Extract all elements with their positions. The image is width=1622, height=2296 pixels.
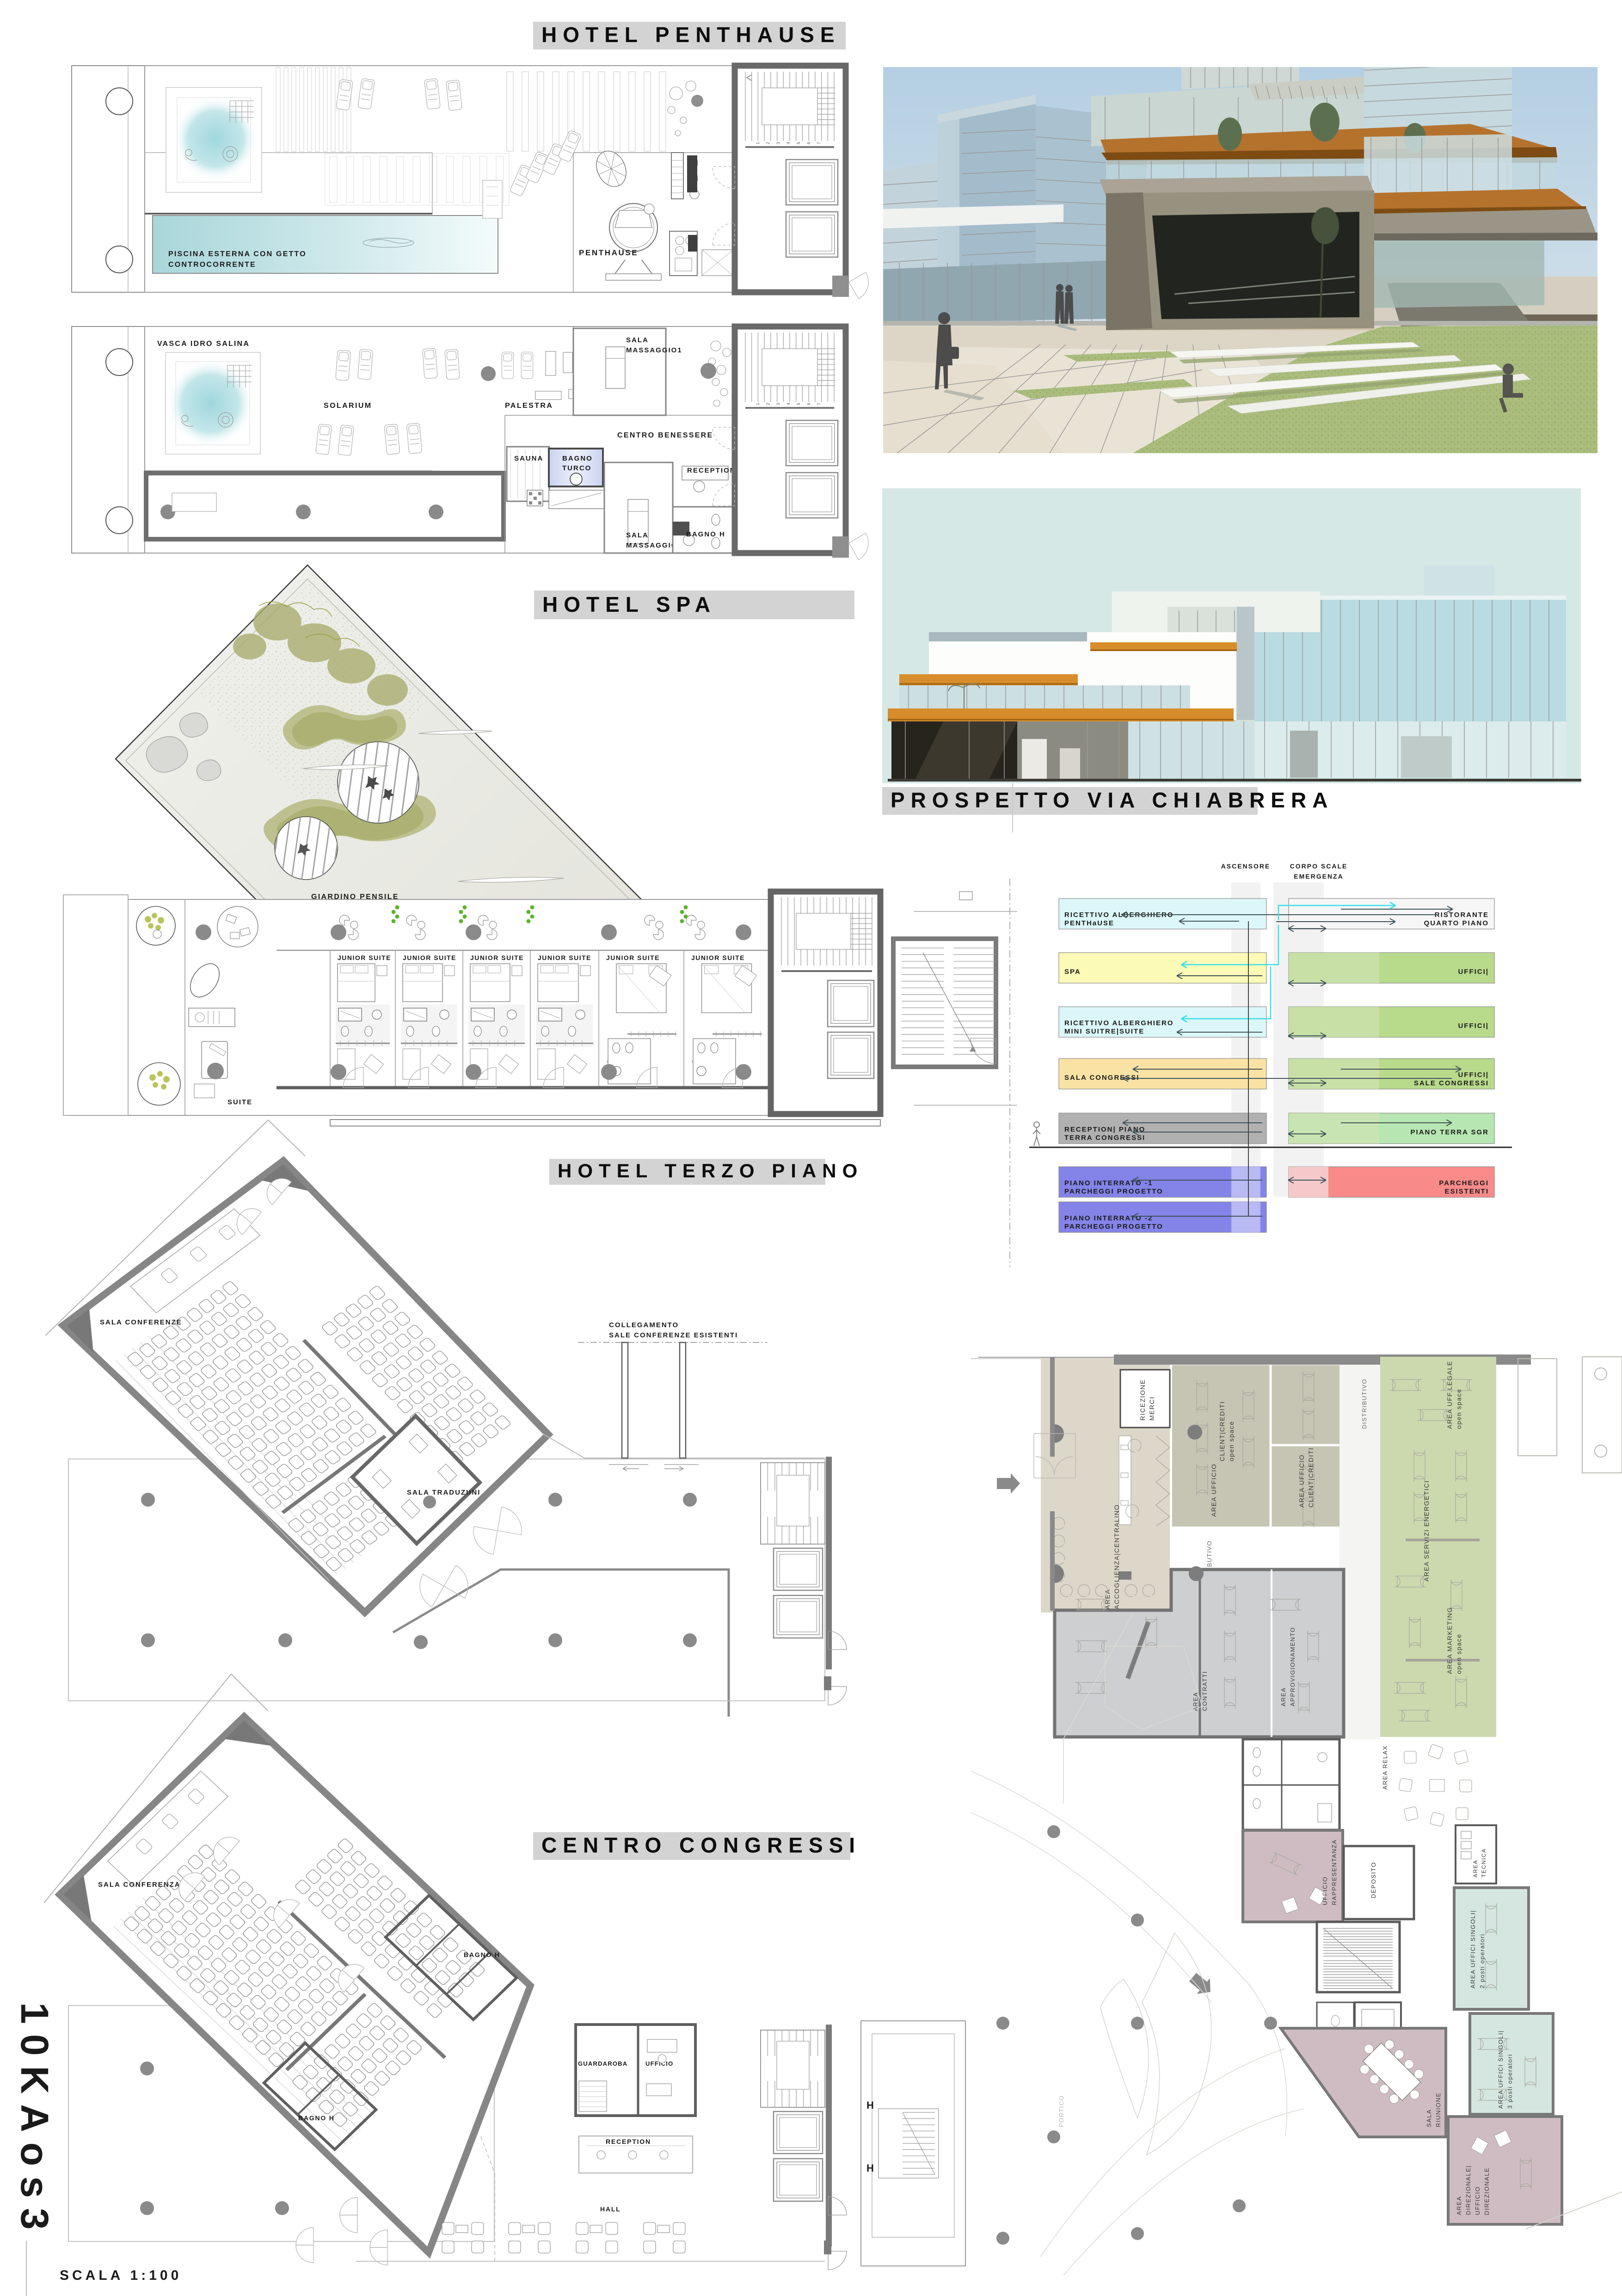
svg-text:SPA: SPA [1064,968,1081,976]
svg-text:GUARDAROBA: GUARDAROBA [578,2060,627,2067]
svg-text:CORPO SCALE: CORPO SCALE [1290,862,1348,870]
svg-text:PENTHaUSE: PENTHaUSE [1064,919,1114,927]
svg-text:QUARTO PIANO: QUARTO PIANO [1424,919,1489,927]
svg-text:EMERGENZA: EMERGENZA [1294,873,1343,880]
svg-text:SALA CONFERENZE: SALA CONFERENZE [100,1318,182,1326]
svg-text:RICEZIONE: RICEZIONE [1139,1379,1146,1421]
svg-text:JUNIOR SUITE: JUNIOR SUITE [470,954,524,961]
svg-text:DEPOSITO: DEPOSITO [1370,1862,1377,1898]
svg-text:2: 2 [766,142,770,144]
svg-text:open space: open space [1455,1634,1462,1674]
svg-text:RICETTIVO ALBERGHIERO: RICETTIVO ALBERGHIERO [1064,1019,1173,1027]
svg-text:DISTRIBUTIVO: DISTRIBUTIVO [1361,1379,1368,1429]
svg-text:SOLARIUM: SOLARIUM [324,402,372,410]
svg-text:HALL: HALL [600,2205,621,2213]
svg-text:AREA RELAX: AREA RELAX [1382,1745,1389,1790]
svg-text:SALA: SALA [626,531,649,539]
svg-text:1: 1 [756,142,760,144]
svg-text:JUNIOR SUITE: JUNIOR SUITE [538,954,591,961]
svg-text:SALA: SALA [1425,2109,1432,2127]
svg-text:PALESTRA: PALESTRA [505,402,553,410]
svg-text:BAGNO H: BAGNO H [686,530,725,538]
svg-text:HOTEL TERZO PIANO: HOTEL TERZO PIANO [558,1160,863,1182]
svg-text:AREA UFFICIO: AREA UFFICIO [1210,1464,1217,1517]
svg-text:HOTEL PENTHAUSE: HOTEL PENTHAUSE [541,23,841,47]
svg-text:CLIENT|CREDITI: CLIENT|CREDITI [1218,1401,1226,1461]
svg-text:RECEPTION: RECEPTION [687,467,736,474]
svg-text:RECEPTION: RECEPTION [606,2138,651,2145]
svg-text:7: 7 [817,403,821,405]
svg-text:UFFICIO: UFFICIO [1474,2186,1481,2216]
svg-text:open space: open space [1455,1389,1462,1429]
svg-text:AREA UFFICIO: AREA UFFICIO [1298,1454,1305,1508]
svg-text:AREA: AREA [1280,1687,1287,1706]
svg-text:4: 4 [786,142,791,144]
svg-text:SCALA 1:100: SCALA 1:100 [60,2268,182,2283]
svg-text:UFFICI|: UFFICI| [1458,968,1489,976]
svg-text:10KAos3: 10KAos3 [13,2002,56,2240]
svg-text:6: 6 [806,403,811,405]
svg-text:SALE CONGRESSI: SALE CONGRESSI [1414,1079,1489,1087]
svg-text:H: H [866,2162,874,2174]
svg-text:ESISTENTI: ESISTENTI [1444,1188,1489,1195]
svg-text:AREA UFFICI SINGOLI|: AREA UFFICI SINGOLI| [1497,2030,1504,2109]
svg-text:TECNICA: TECNICA [1481,1848,1487,1877]
svg-text:CONTROCORRENTE: CONTROCORRENTE [168,261,256,269]
svg-text:UFFICI|: UFFICI| [1458,1071,1489,1079]
svg-text:JUNIOR SUITE: JUNIOR SUITE [338,954,391,961]
svg-text:JUNIOR SUITE: JUNIOR SUITE [606,954,660,961]
svg-text:2: 2 [766,403,770,405]
svg-text:SALE CONFERENZE ESISTENTI: SALE CONFERENZE ESISTENTI [609,1331,738,1339]
svg-text:MASSAGGIO1: MASSAGGIO1 [626,346,682,354]
svg-text:6: 6 [806,142,811,144]
svg-text:PIANO INTERRATO -2: PIANO INTERRATO -2 [1064,1214,1153,1222]
svg-text:JUNIOR SUITE: JUNIOR SUITE [691,954,745,961]
svg-text:ASCENSORE: ASCENSORE [1221,862,1271,870]
svg-text:open space: open space [1228,1421,1235,1461]
svg-text:SALA CONFERENZA: SALA CONFERENZA [98,1881,181,1889]
svg-text:TERRA CONGRESSI: TERRA CONGRESSI [1064,1134,1145,1142]
svg-text:DIREZIONALE|: DIREZIONALE| [1465,2165,1472,2215]
svg-text:HOTEL SPA: HOTEL SPA [542,592,716,616]
svg-text:PIANO TERRA SGR: PIANO TERRA SGR [1411,1128,1489,1136]
svg-text:APPROVIGIONAMENTO: APPROVIGIONAMENTO [1289,1627,1296,1706]
svg-text:PROSPETTO VIA CHIABRERA: PROSPETTO VIA CHIABRERA [891,788,1333,812]
svg-text:3: 3 [776,403,780,405]
svg-text:SALA: SALA [626,336,649,344]
svg-text:RIUNIONE: RIUNIONE [1435,2092,1442,2127]
svg-text:AREA MARKETING: AREA MARKETING [1446,1607,1453,1674]
svg-text:CLIENT|CREDITI: CLIENT|CREDITI [1307,1447,1315,1508]
svg-text:AREA UFF.LEGALE: AREA UFF.LEGALE [1446,1360,1453,1429]
svg-text:RAPPRESENTANZA: RAPPRESENTANZA [1331,1839,1338,1905]
svg-text:PENTHAUSE: PENTHAUSE [579,248,638,257]
svg-text:ACCOGLIENZA|CENTRALINO: ACCOGLIENZA|CENTRALINO [1113,1504,1120,1609]
svg-text:AREA: AREA [1472,1859,1479,1877]
svg-text:1: 1 [756,403,760,405]
svg-text:BAGNO: BAGNO [562,455,593,462]
svg-text:PARCHEGGI PROGETTO: PARCHEGGI PROGETTO [1064,1188,1163,1195]
svg-text:TURCO: TURCO [562,464,591,472]
svg-text:AREA SERVIZI ENERGETICI: AREA SERVIZI ENERGETICI [1423,1480,1430,1582]
svg-text:CENTRO CONGRESSI: CENTRO CONGRESSI [541,1833,861,1857]
svg-text:COLLEGAMENTO: COLLEGAMENTO [609,1321,679,1329]
svg-text:5: 5 [796,403,801,405]
svg-text:DIREZIONALE: DIREZIONALE [1483,2167,1490,2215]
svg-text:AREA UFFICI SINGOLI|: AREA UFFICI SINGOLI| [1469,1910,1476,1988]
svg-text:JUNIOR SUITE: JUNIOR SUITE [403,954,456,961]
svg-text:3 posti operatori: 3 posti operatori [1506,2054,1513,2109]
svg-text:2 posti operatori: 2 posti operatori [1479,1933,1486,1988]
svg-text:PARCHEGGI: PARCHEGGI [1439,1179,1489,1187]
svg-text:BAGNO H: BAGNO H [298,2114,335,2122]
svg-text:UFFICIO: UFFICIO [1321,1877,1328,1906]
svg-text:MINI SUITRE|SUITE: MINI SUITRE|SUITE [1064,1028,1144,1035]
svg-text:4: 4 [786,403,791,405]
svg-text:SAUNA: SAUNA [514,455,543,462]
svg-text:SALA TRADUZIINI: SALA TRADUZIINI [407,1489,480,1496]
svg-text:3: 3 [776,142,780,144]
svg-text:7: 7 [817,142,821,144]
svg-text:BAGNO H: BAGNO H [464,1951,500,1958]
svg-text:PARCHEGGI PROGETTO: PARCHEGGI PROGETTO [1064,1223,1163,1231]
svg-text:5: 5 [796,142,801,144]
svg-text:PISCINA ESTERNA CON GETTO: PISCINA ESTERNA CON GETTO [168,250,307,258]
svg-text:PORTICO: PORTICO [1058,2095,1065,2128]
svg-text:CONTRATTI: CONTRATTI [1201,1671,1208,1711]
svg-text:SALA CONGRESSI: SALA CONGRESSI [1064,1074,1139,1082]
svg-text:SUITE: SUITE [227,1098,252,1106]
svg-text:UFFICI|: UFFICI| [1458,1022,1489,1030]
svg-text:RISTORANTE: RISTORANTE [1435,911,1489,919]
svg-text:MERCI: MERCI [1148,1396,1155,1421]
svg-text:VASCA IDRO SALINA: VASCA IDRO SALINA [157,340,250,348]
svg-text:CENTRO BENESSERE: CENTRO BENESSERE [617,431,713,439]
svg-text:AREA: AREA [1456,2196,1462,2215]
svg-text:H: H [866,2099,874,2111]
